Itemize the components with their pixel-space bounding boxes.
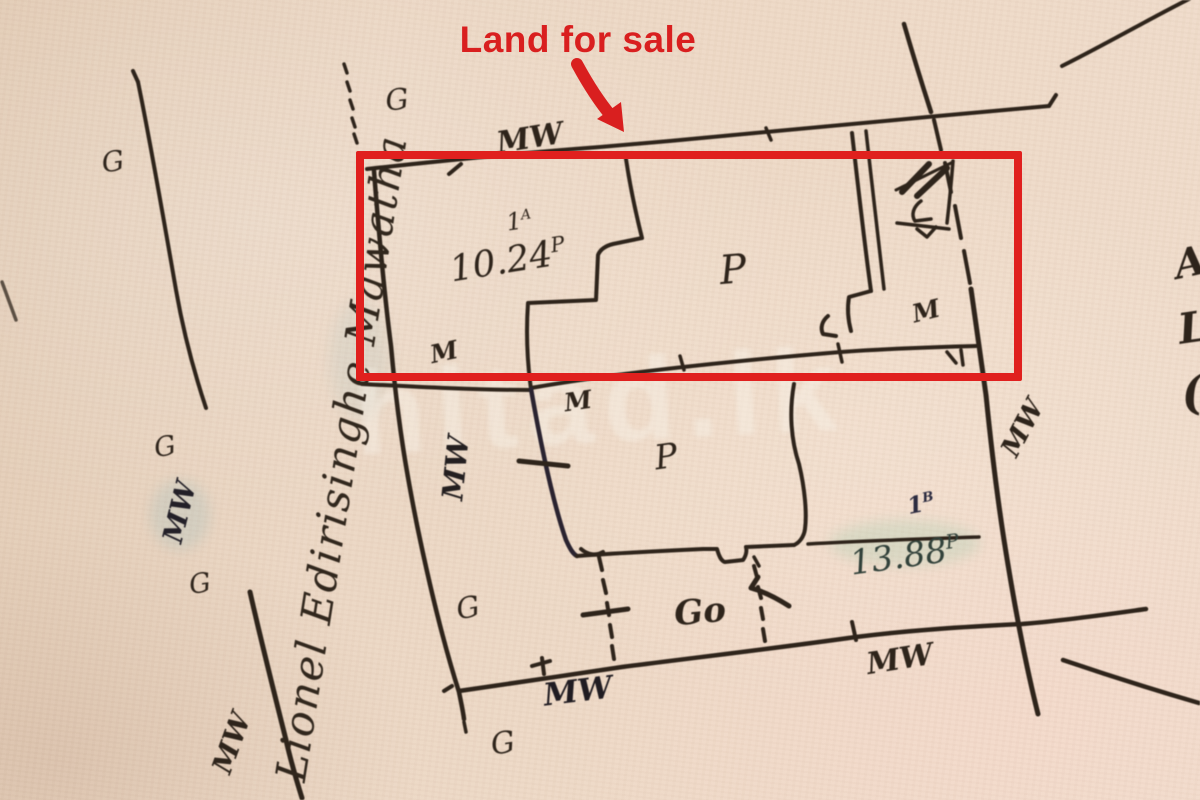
land-for-sale-label: Land for sale — [460, 19, 697, 61]
survey-mark-m: M — [563, 387, 594, 416]
survey-mark-g: G — [384, 84, 410, 115]
road-line-east — [904, 24, 931, 112]
plot-symbol-p: P — [652, 439, 679, 476]
offplan-line — [2, 282, 16, 320]
survey-mark-g: G — [489, 727, 517, 760]
subdivision-line — [362, 384, 531, 390]
road-line — [133, 71, 138, 82]
boundary-tick — [444, 686, 452, 691]
survey-mark-g: G — [187, 569, 212, 599]
offplan-line — [1063, 660, 1199, 703]
plot2-south-boundary — [577, 545, 794, 562]
survey-map-layer: hitad.lk — [0, 0, 1200, 800]
boundary-tick — [532, 658, 550, 674]
survey-cross-mark — [583, 609, 628, 615]
edge-letter: ( — [1179, 369, 1200, 417]
boundary-tick — [464, 722, 466, 732]
area-unit: P — [944, 529, 960, 554]
boundary-tick — [581, 549, 603, 554]
survey-mark-g: G — [100, 147, 126, 178]
offplan-line — [1062, 0, 1199, 66]
boundary-tick — [1049, 95, 1056, 106]
for-sale-highlight-rectangle — [356, 151, 1022, 381]
hook-mark — [751, 577, 789, 606]
survey-mark-go: Go — [673, 593, 727, 631]
survey-mark-mw: MW — [542, 672, 614, 711]
survey-plan-photo: hitad.lk — [0, 0, 1200, 800]
survey-mark-mw: MW — [438, 434, 474, 501]
road-dashes — [344, 64, 357, 143]
survey-cross-mark — [519, 461, 568, 466]
dashed-path — [599, 557, 614, 659]
plot2-east-boundary — [791, 384, 805, 545]
survey-mark-g: G — [152, 432, 178, 462]
survey-mark-g: G — [454, 592, 482, 625]
road-line — [138, 82, 206, 408]
